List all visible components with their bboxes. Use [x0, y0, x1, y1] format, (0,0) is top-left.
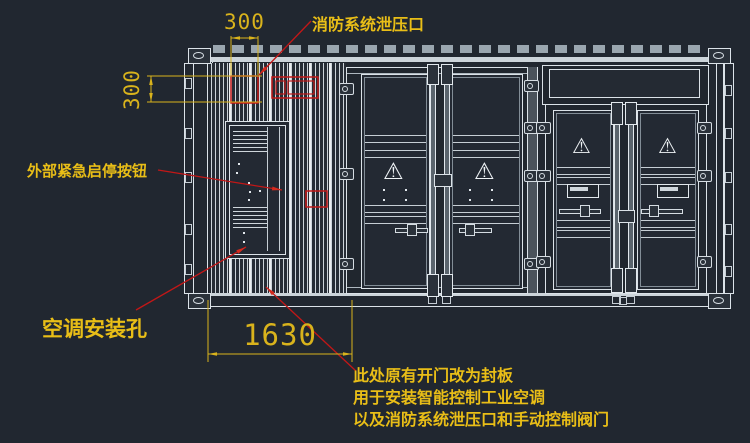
- dim-arrowhead: [249, 36, 258, 40]
- dim-arrowhead: [208, 352, 217, 356]
- dim-value-top: 300: [224, 10, 264, 34]
- label-seal-note-line2: 用于安装智能控制工业空调: [353, 384, 545, 408]
- fire-relief-opening-marker: [231, 76, 258, 103]
- vent-opening-inner-small: [276, 81, 285, 94]
- label-seal-note-line1: 此处原有开门改为封板: [353, 362, 513, 386]
- leader-emergency-button: [158, 170, 282, 190]
- vent-opening-marker: [272, 77, 318, 98]
- label-fire-relief: 消防系统泄压口: [312, 11, 424, 35]
- label-aircon-hole: 空调安装孔: [42, 313, 147, 343]
- label-seal-note-line3: 以及消防系统泄压口和手动控制阀门: [353, 406, 609, 430]
- dim-arrowhead: [343, 352, 352, 356]
- dim-arrowhead: [231, 36, 240, 40]
- leader-aircon-hole: [136, 247, 246, 310]
- leader-fire-relief: [259, 21, 311, 75]
- dim-value-bottom: 1630: [238, 318, 322, 352]
- dim-arrowhead: [149, 76, 153, 85]
- vent-opening-inner-large: [288, 81, 314, 94]
- cad-drawing-canvas: ⚠ ⚠ ⚠: [0, 0, 750, 443]
- dim-value-left: 300: [120, 70, 144, 110]
- leader-arrowhead: [272, 187, 282, 191]
- emergency-button-marker: [306, 191, 327, 207]
- label-emergency-button: 外部紧急启停按钮: [27, 160, 147, 181]
- dim-arrowhead: [149, 93, 153, 102]
- leader-arrowhead: [236, 247, 246, 254]
